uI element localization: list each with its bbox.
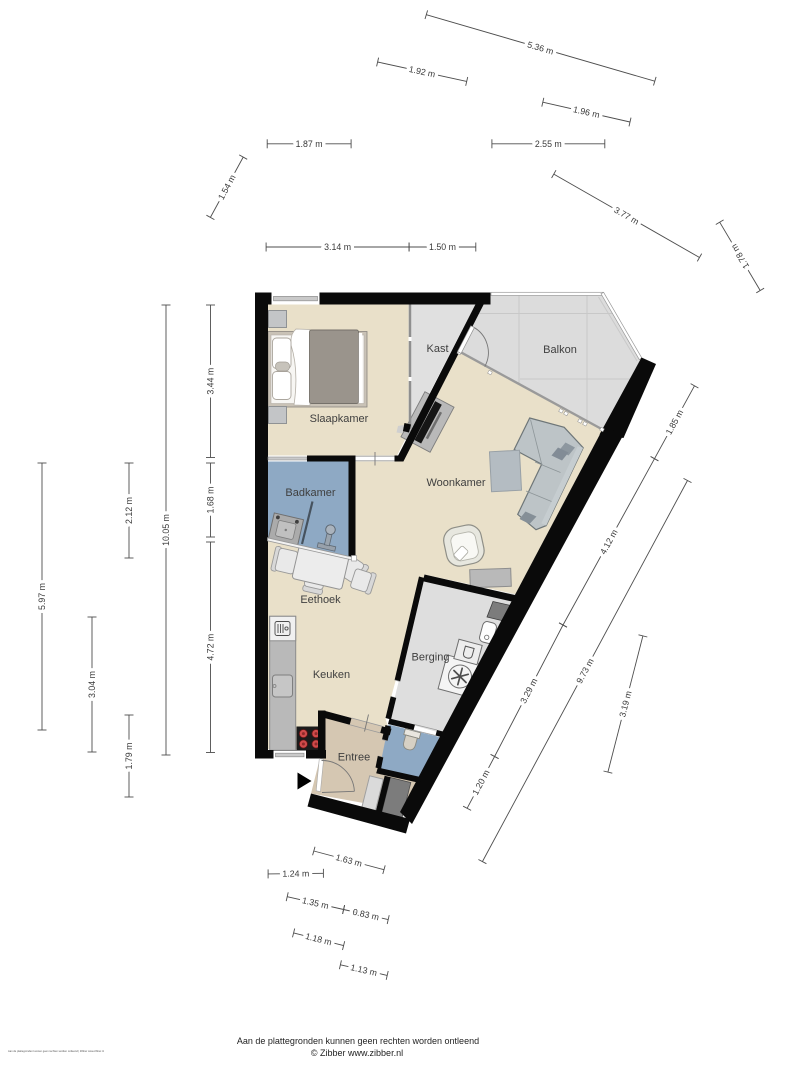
svg-text:Berging: Berging xyxy=(412,652,450,664)
svg-text:5.36 m: 5.36 m xyxy=(526,39,555,56)
svg-text:1.20 m: 1.20 m xyxy=(470,768,491,796)
svg-text:3.44 m: 3.44 m xyxy=(206,368,216,395)
svg-text:3.14 m: 3.14 m xyxy=(324,242,351,252)
svg-text:3.19 m: 3.19 m xyxy=(617,690,633,719)
svg-text:Aan de plattegronden kunnen ge: Aan de plattegronden kunnen geen rechten… xyxy=(8,1049,104,1053)
svg-text:Woonkamer: Woonkamer xyxy=(426,477,485,489)
svg-text:Keuken: Keuken xyxy=(313,669,350,681)
svg-text:Slaapkamer: Slaapkamer xyxy=(310,413,369,425)
svg-text:0.83 m: 0.83 m xyxy=(352,907,380,923)
svg-text:10.05 m: 10.05 m xyxy=(161,514,171,546)
svg-text:1.63 m: 1.63 m xyxy=(335,852,364,869)
svg-text:4.12 m: 4.12 m xyxy=(598,528,620,556)
svg-text:4.72 m: 4.72 m xyxy=(206,634,216,661)
svg-text:9.73 m: 9.73 m xyxy=(574,657,596,685)
svg-text:Kast: Kast xyxy=(426,343,448,355)
svg-text:2.55 m: 2.55 m xyxy=(535,139,562,149)
svg-text:Aan de plattegronden kunnen ge: Aan de plattegronden kunnen geen rechten… xyxy=(237,1036,479,1046)
svg-text:1.79 m: 1.79 m xyxy=(124,743,134,770)
svg-text:1.78 m: 1.78 m xyxy=(729,242,751,270)
svg-text:1.92 m: 1.92 m xyxy=(408,64,436,80)
svg-text:© Zibber www.zibber.nl: © Zibber www.zibber.nl xyxy=(311,1048,403,1058)
svg-text:Entree: Entree xyxy=(338,752,370,764)
svg-text:1.35 m: 1.35 m xyxy=(301,895,329,911)
svg-text:3.77 m: 3.77 m xyxy=(612,205,640,227)
svg-text:1.96 m: 1.96 m xyxy=(572,104,600,120)
svg-text:2.12 m: 2.12 m xyxy=(124,497,134,524)
svg-text:1.13 m: 1.13 m xyxy=(350,962,378,978)
svg-text:1.18 m: 1.18 m xyxy=(304,931,333,947)
svg-text:Badkamer: Badkamer xyxy=(285,487,335,499)
svg-text:1.54 m: 1.54 m xyxy=(216,173,238,201)
svg-text:5.97 m: 5.97 m xyxy=(37,583,47,610)
svg-text:3.29 m: 3.29 m xyxy=(518,677,539,705)
svg-text:1.68 m: 1.68 m xyxy=(206,487,216,514)
svg-text:1.87 m: 1.87 m xyxy=(296,139,323,149)
svg-text:1.50 m: 1.50 m xyxy=(429,242,456,252)
svg-text:3.04 m: 3.04 m xyxy=(87,671,97,698)
svg-text:1.85 m: 1.85 m xyxy=(664,408,686,436)
svg-text:Balkon: Balkon xyxy=(543,344,577,356)
svg-text:Eethoek: Eethoek xyxy=(300,594,341,606)
svg-text:1.24 m: 1.24 m xyxy=(282,868,309,878)
